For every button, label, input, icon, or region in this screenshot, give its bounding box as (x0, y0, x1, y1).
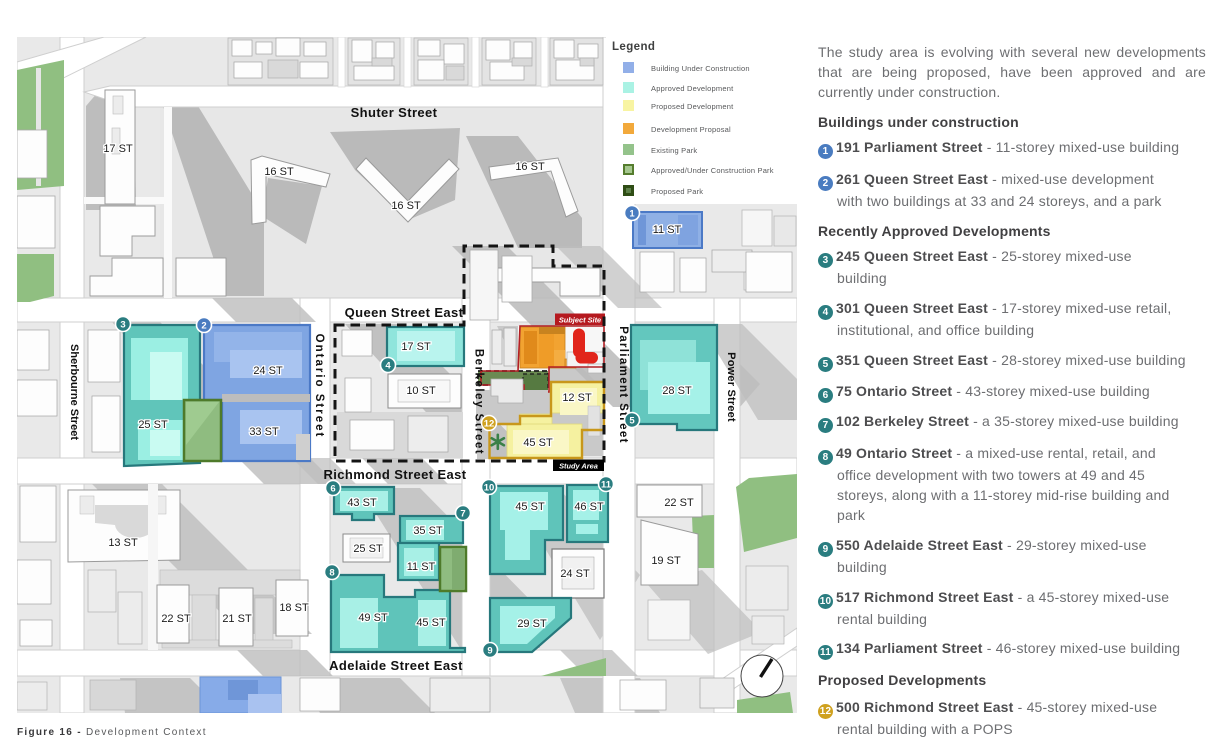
svg-text:28 ST: 28 ST (662, 385, 692, 397)
svg-text:Power Street: Power Street (725, 352, 737, 422)
svg-text:19 ST: 19 ST (651, 555, 681, 567)
svg-text:16 ST: 16 ST (391, 200, 421, 212)
svg-text:13 ST: 13 ST (108, 537, 138, 549)
svg-text:24 ST: 24 ST (253, 365, 283, 377)
svg-text:46 ST: 46 ST (574, 501, 604, 513)
svg-text:10 ST: 10 ST (406, 385, 436, 397)
svg-text:6: 6 (330, 484, 335, 495)
svg-text:17 ST: 17 ST (103, 143, 133, 155)
svg-text:Sherbourne Street: Sherbourne Street (68, 344, 80, 440)
svg-text:17 ST: 17 ST (401, 341, 431, 353)
svg-text:Adelaide Street East: Adelaide Street East (329, 658, 463, 673)
svg-text:9: 9 (487, 646, 492, 657)
svg-text:12: 12 (484, 419, 495, 430)
svg-text:Ontario Street: Ontario Street (313, 334, 325, 439)
svg-text:45 ST: 45 ST (515, 501, 545, 513)
svg-text:29 ST: 29 ST (517, 618, 547, 630)
svg-text:21 ST: 21 ST (222, 613, 252, 625)
svg-text:Richmond Street East: Richmond Street East (323, 467, 466, 482)
svg-text:5: 5 (629, 416, 635, 427)
svg-text:11 ST: 11 ST (653, 224, 682, 236)
svg-text:8: 8 (329, 568, 334, 579)
svg-text:45 ST: 45 ST (416, 617, 446, 629)
svg-text:16 ST: 16 ST (264, 166, 294, 178)
svg-text:Queen Street East: Queen Street East (345, 305, 464, 320)
svg-text:18 ST: 18 ST (279, 602, 309, 614)
svg-text:25 ST: 25 ST (138, 419, 168, 431)
svg-text:Shuter Street: Shuter Street (351, 105, 438, 120)
svg-text:12 ST: 12 ST (562, 392, 592, 404)
svg-text:43 ST: 43 ST (347, 497, 377, 509)
svg-text:3: 3 (120, 320, 125, 331)
svg-text:4: 4 (385, 361, 391, 372)
svg-text:2: 2 (201, 321, 206, 332)
svg-text:33 ST: 33 ST (249, 426, 279, 438)
svg-text:49 ST: 49 ST (358, 612, 388, 624)
svg-text:25 ST: 25 ST (353, 543, 383, 555)
svg-text:Study Area: Study Area (559, 462, 598, 471)
svg-text:7: 7 (460, 509, 465, 520)
svg-text:24 ST: 24 ST (560, 568, 590, 580)
svg-text:11 ST: 11 ST (407, 561, 436, 573)
svg-text:22 ST: 22 ST (664, 497, 694, 509)
svg-text:Berkeley Street: Berkeley Street (473, 349, 485, 455)
svg-text:11: 11 (601, 480, 612, 491)
svg-text:1: 1 (629, 209, 635, 220)
svg-text:10: 10 (484, 483, 495, 494)
svg-text:16 ST: 16 ST (515, 161, 545, 173)
svg-text:45 ST: 45 ST (523, 437, 553, 449)
svg-text:35 ST: 35 ST (413, 525, 443, 537)
svg-text:22 ST: 22 ST (161, 613, 191, 625)
svg-text:Subject Site: Subject Site (559, 316, 601, 325)
